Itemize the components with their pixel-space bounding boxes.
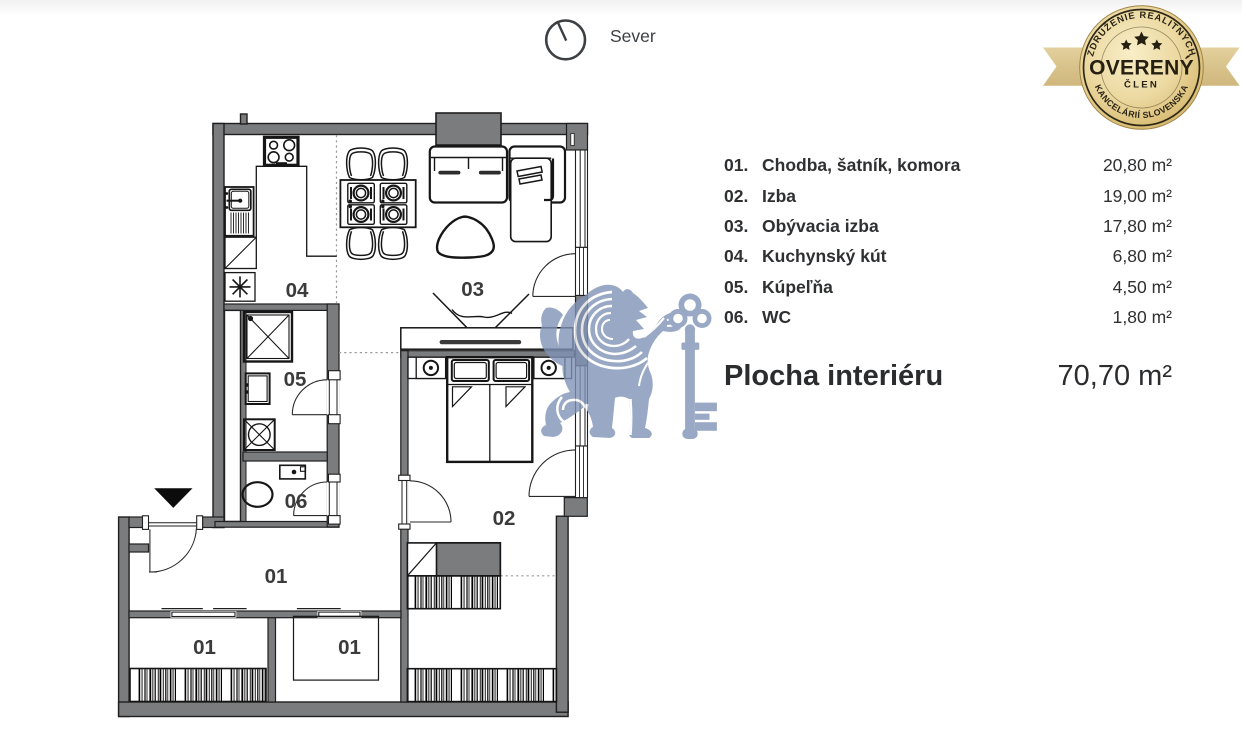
svg-text:06: 06 [285,490,308,513]
svg-text:04: 04 [286,279,309,302]
svg-text:ČLEN: ČLEN [1124,79,1159,91]
svg-text:03: 03 [461,278,484,301]
svg-text:OVERENÝ: OVERENÝ [1089,56,1194,80]
svg-text:01: 01 [193,636,216,659]
svg-text:02: 02 [493,507,516,530]
svg-text:01: 01 [338,636,361,659]
svg-text:01: 01 [265,565,288,588]
svg-text:05: 05 [284,368,307,391]
